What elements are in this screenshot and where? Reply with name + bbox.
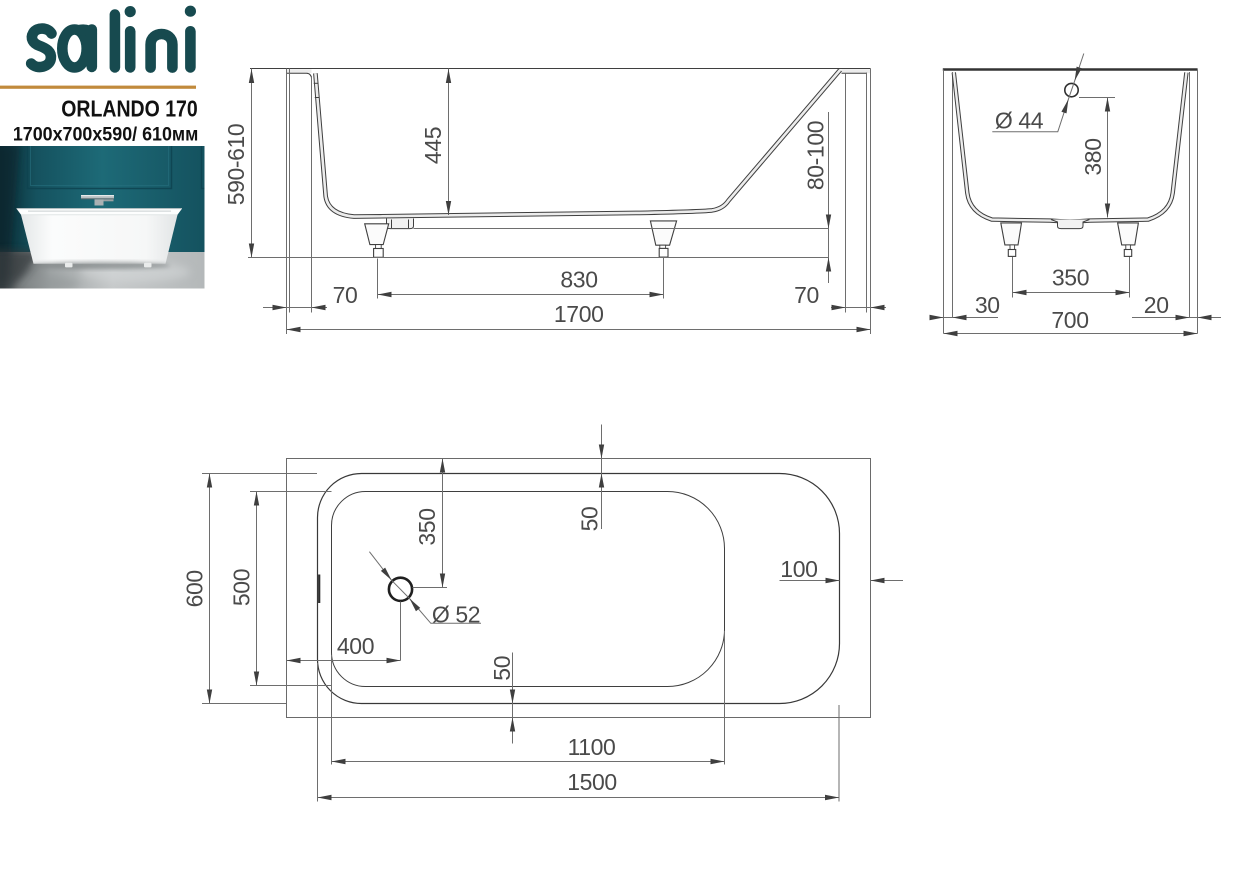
svg-text:50: 50 [577, 507, 603, 532]
svg-text:80-100: 80-100 [803, 121, 829, 190]
svg-text:50: 50 [489, 656, 515, 681]
svg-text:400: 400 [337, 633, 374, 659]
svg-text:70: 70 [333, 282, 358, 308]
svg-text:350: 350 [1052, 265, 1089, 291]
svg-text:100: 100 [780, 556, 817, 582]
svg-text:700: 700 [1051, 307, 1088, 333]
svg-text:70: 70 [794, 282, 819, 308]
svg-text:380: 380 [1080, 138, 1106, 175]
svg-text:1700x700x590/ 610мм: 1700x700x590/ 610мм [13, 124, 199, 146]
svg-text:590-610: 590-610 [223, 124, 249, 206]
svg-text:ORLANDO 170: ORLANDO 170 [61, 96, 198, 122]
svg-text:Ø 52: Ø 52 [432, 602, 480, 628]
svg-text:1100: 1100 [568, 734, 616, 760]
svg-text:20: 20 [1144, 292, 1169, 318]
svg-text:600: 600 [182, 570, 208, 607]
svg-text:830: 830 [560, 267, 597, 293]
svg-text:445: 445 [420, 127, 446, 164]
svg-text:30: 30 [975, 292, 1000, 318]
svg-text:350: 350 [414, 508, 440, 545]
svg-text:1700: 1700 [554, 301, 604, 327]
svg-text:Ø 44: Ø 44 [995, 108, 1044, 134]
svg-text:1500: 1500 [567, 769, 617, 795]
svg-text:500: 500 [229, 569, 255, 606]
